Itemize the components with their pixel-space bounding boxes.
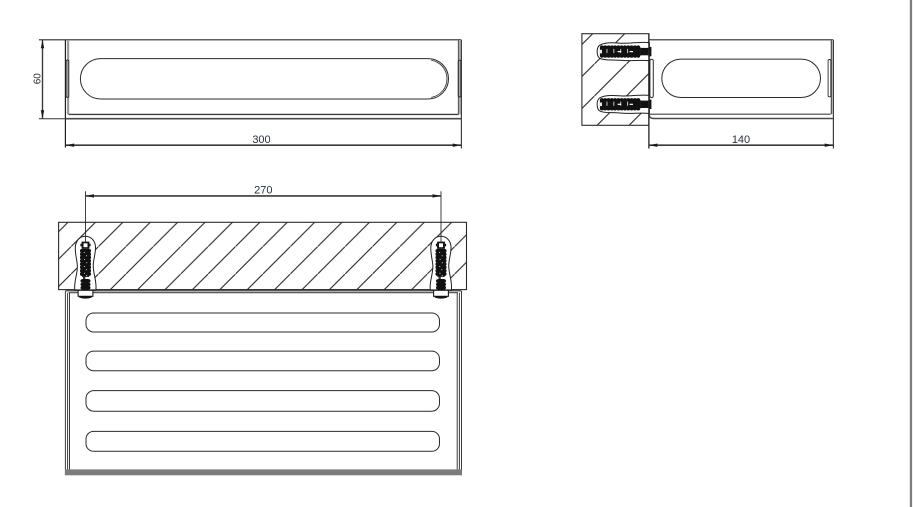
svg-text:300: 300 <box>252 134 270 146</box>
svg-text:60: 60 <box>33 73 44 85</box>
svg-text:270: 270 <box>254 185 272 197</box>
svg-text:140: 140 <box>732 134 750 146</box>
